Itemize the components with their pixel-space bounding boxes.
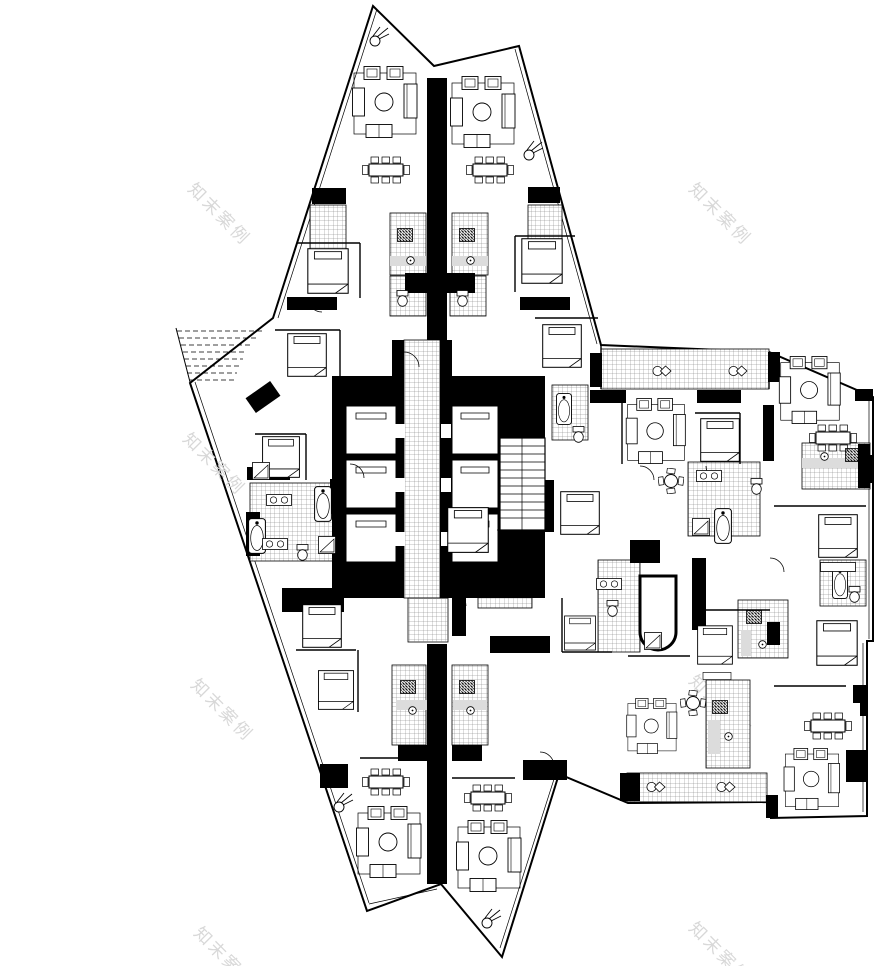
wall-segment [392, 340, 404, 378]
tub-icon [557, 394, 572, 425]
toilet-icon [849, 587, 860, 603]
bed-icon [303, 605, 342, 648]
wall-segment [520, 297, 570, 310]
wall-segment [440, 340, 452, 378]
wall-segment [697, 390, 741, 403]
bed-icon [561, 492, 600, 535]
bed-icon [819, 515, 858, 558]
stove-icon [398, 229, 413, 242]
wall-segment [332, 376, 404, 394]
stove-icon [460, 681, 475, 694]
vanity-icon [597, 579, 622, 590]
wall-segment [428, 565, 545, 587]
wall-segment [590, 390, 626, 403]
wall-segment [490, 636, 550, 653]
bed-icon [522, 239, 562, 284]
stove-icon [747, 611, 762, 624]
tub-icon [715, 509, 732, 544]
wall-segment [590, 353, 602, 387]
bed-icon [308, 249, 348, 294]
vanity-icon [697, 471, 722, 482]
bed-icon [701, 419, 740, 462]
wall-segment [523, 760, 567, 780]
bed-icon [543, 325, 582, 368]
watermark-text: 知末案例 [685, 179, 755, 249]
tub-icon [833, 568, 848, 599]
sink-icon [407, 257, 415, 265]
fixture-shade [708, 720, 720, 754]
wall-segment [405, 273, 433, 293]
sink-icon [759, 641, 767, 649]
tile-hatch [598, 560, 640, 652]
stair-flight [500, 438, 545, 530]
plan-sheet: 知末案例 知末案例 知末案例 知末案例 知末案例 知末案例 知末案例 知末案例 [0, 0, 880, 966]
stair-shaft [500, 438, 545, 530]
wall-segment [855, 389, 873, 401]
sink-icon [467, 707, 475, 715]
wall-segment [452, 745, 482, 761]
toilet-icon [573, 427, 584, 443]
sink-icon [725, 733, 733, 741]
toilet-icon [397, 291, 408, 307]
fixture-shade [741, 630, 751, 656]
wall-segment [440, 376, 545, 394]
stove-icon [460, 229, 475, 242]
sink-icon [467, 257, 475, 265]
watermark-text: 知末案例 [187, 675, 257, 745]
lobby-corridor-tiles [408, 598, 448, 642]
wall-segment [767, 622, 780, 645]
toilet-icon [297, 545, 308, 561]
wall-segment [312, 188, 346, 204]
wall-segment [866, 455, 873, 483]
bed-icon [698, 626, 733, 664]
table-icon [703, 672, 731, 679]
wall-segment [330, 479, 343, 514]
wall-segment [447, 273, 475, 293]
sink-icon [821, 453, 829, 461]
wall-segment [427, 644, 447, 884]
louvre-edge [176, 328, 190, 382]
wall-segment [763, 405, 774, 461]
vanity-icon [263, 539, 288, 550]
stove-icon [846, 449, 861, 462]
wall-segment [692, 558, 706, 630]
bed-icon [817, 621, 857, 666]
toilet-icon [751, 479, 762, 495]
watermark-text: 知末案例 [685, 918, 755, 966]
toilet-icon [607, 601, 618, 617]
bed-icon [318, 671, 353, 710]
stove-icon [401, 681, 416, 694]
wall-segment [452, 596, 466, 636]
bed-icon [448, 508, 489, 553]
shower-icon [645, 633, 662, 650]
wall-segment [768, 352, 780, 382]
bed-icon [288, 334, 327, 377]
wall-segment [766, 795, 778, 818]
toilet-icon [457, 291, 468, 307]
stove-icon [713, 701, 728, 714]
core-corridor-tiles [404, 340, 440, 598]
watermark-text: 知末案例 [184, 179, 254, 249]
shower-icon [253, 463, 270, 480]
vanity-icon [267, 495, 292, 506]
table-icon [821, 563, 856, 572]
shower-icon [319, 537, 336, 554]
bed-icon [565, 616, 596, 650]
sink-icon [409, 707, 417, 715]
tub-icon [315, 487, 332, 522]
wall-segment [528, 187, 560, 203]
wall-segment [427, 78, 447, 340]
floor-plan: 知末案例 知末案例 知末案例 知末案例 知末案例 知末案例 知末案例 知末案例 [0, 0, 880, 966]
shower-icon [693, 519, 710, 536]
wall-segment [630, 540, 660, 563]
wall-segment [620, 773, 640, 801]
wall-segment [860, 690, 867, 716]
wall-segment [846, 750, 868, 782]
wall-segment [320, 764, 348, 788]
watermark-text: 知末案例 [190, 923, 260, 966]
